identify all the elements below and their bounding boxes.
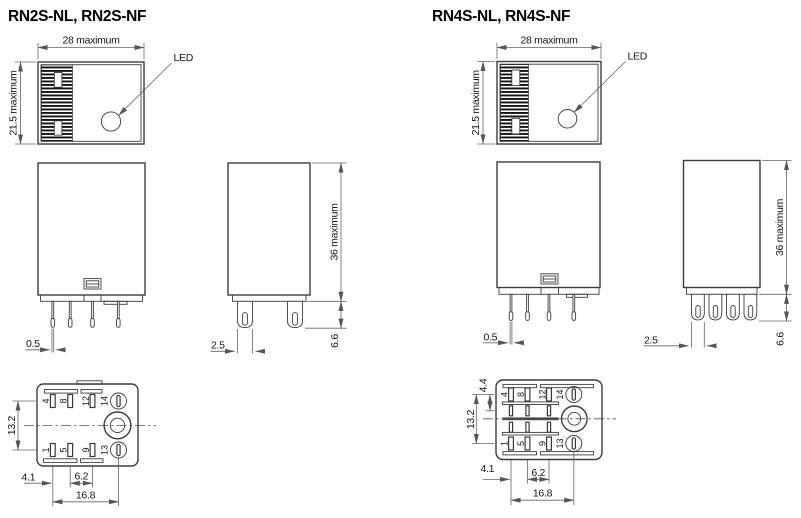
rn2s-pin-row-top: 4 8 12 14 bbox=[41, 393, 126, 409]
rn2s-led-indicator-circle bbox=[101, 112, 120, 131]
rn2s-body-height-text: 36 maximum bbox=[329, 203, 341, 261]
rn2s-slot-top bbox=[54, 73, 62, 88]
rn2s-blade-width-text: 2.5 bbox=[211, 340, 225, 352]
rn2s-pin-label: 9 bbox=[81, 447, 91, 452]
rn2s-top-view: LED 28 maximum 21.5 maximum bbox=[8, 35, 194, 145]
rn4s-height-dim-text: 21.5 maximum bbox=[470, 70, 482, 136]
rn2s-front-flange bbox=[41, 295, 143, 301]
rn4s-pin-length-dimension: 6.6 bbox=[759, 294, 792, 346]
rn4s-blade-width-dimension: 2.5 bbox=[644, 322, 716, 348]
rn2s-overall-pitch-text: 16.8 bbox=[76, 490, 96, 502]
rn4s-pin-thickness-text: 0.5 bbox=[484, 332, 498, 344]
rn2s-pin-label: 1 bbox=[41, 447, 51, 452]
rn4s-latch-plate bbox=[541, 274, 558, 284]
rn4s-height-dimension: 21.5 maximum bbox=[470, 62, 495, 145]
rn4s-blade-terminals bbox=[691, 294, 756, 320]
rn2s-pin-label: 8 bbox=[59, 398, 69, 403]
rn4s-front-flange bbox=[499, 288, 599, 295]
rn4s-front-pins bbox=[509, 294, 575, 320]
rn2s-front-view: 0.5 bbox=[26, 163, 146, 353]
rn2s-edge-offset-text: 4.1 bbox=[22, 472, 36, 484]
rn4s-center-pitch-text: 6.2 bbox=[531, 467, 545, 479]
rn2s-height-dimension: 21.5 maximum bbox=[8, 62, 37, 144]
rn4s-front-view: 0.5 bbox=[483, 162, 600, 345]
rn4s-blade-width-text: 2.5 bbox=[644, 335, 658, 347]
rn4s-pin-label: 4 bbox=[499, 392, 509, 397]
rn4s-side-outline bbox=[684, 161, 761, 288]
rn4s-pin-label: 5 bbox=[516, 441, 526, 446]
rn4s-pin-label: 14 bbox=[555, 389, 565, 399]
rn2s-width-dim-text: 28 maximum bbox=[62, 35, 120, 47]
rn2s-pin-thickness-text: 0.5 bbox=[26, 338, 40, 350]
rn4s-overall-pitch-text: 16.8 bbox=[533, 488, 553, 500]
dimension-drawing-page: RN2S-NL, RN2S-NF LED 28 maximum bbox=[0, 0, 801, 518]
rn4s-front-outline bbox=[497, 162, 600, 288]
rn2s-front-pins bbox=[51, 301, 120, 327]
rn4s-body-height-text: 36 maximum bbox=[774, 198, 786, 256]
rn2s-title: RN2S-NL, RN2S-NF bbox=[8, 8, 146, 25]
rn4s-slot-top bbox=[512, 70, 520, 86]
rn4s-bottom-view: 4 8 12 14 1 5 bbox=[465, 378, 616, 505]
rn2s-side-flange bbox=[233, 295, 307, 301]
rn4s-pin-row-4: 1 5 9 13 bbox=[499, 436, 581, 452]
rn2s-pin-thickness-dimension: 0.5 bbox=[26, 329, 64, 353]
rn4s-edge-offset-text: 4.1 bbox=[481, 463, 495, 475]
rn2s-slot-bottom bbox=[54, 121, 62, 135]
rn2s-center-pitch-text: 6.2 bbox=[74, 471, 88, 483]
rn4s-title: RN4S-NL, RN4S-NF bbox=[432, 8, 570, 25]
rn2s-led-label: LED bbox=[174, 52, 194, 64]
rn2s-front-outline bbox=[38, 163, 145, 295]
rn4s-width-dim-text: 28 maximum bbox=[520, 35, 578, 47]
rn4s-pin-row-3 bbox=[509, 422, 550, 432]
rn2s-pin-row-bottom: 1 5 9 13 bbox=[41, 442, 126, 458]
rn2s-height-dim-text: 21.5 maximum bbox=[8, 70, 20, 136]
rn4s-side-view: 36 maximum 6.6 2.5 bbox=[644, 161, 792, 348]
rn2s-pin-label: 14 bbox=[100, 396, 110, 406]
rn4s-pin-row-1: 4 8 12 14 bbox=[499, 387, 581, 403]
rn2s-bottom-view: 4 8 12 14 1 5 9 13 13.2 bbox=[6, 381, 156, 506]
rn2s-pin-length-dimension: 6.6 bbox=[305, 301, 347, 348]
rn4s-width-dimension: 28 maximum bbox=[497, 35, 601, 60]
rn4s-row-spacing-text: 4.4 bbox=[478, 378, 490, 392]
rn4s-pin-label: 1 bbox=[499, 441, 509, 446]
rn2s-pin-label: 5 bbox=[59, 447, 69, 452]
rn2s-body-height-dimension: 36 maximum bbox=[307, 163, 347, 301]
rn4s-pin-row-2 bbox=[509, 406, 550, 416]
rn2s-side-view: 36 maximum 6.6 2.5 bbox=[211, 163, 347, 354]
rn2s-pin-label: 12 bbox=[81, 396, 91, 406]
rn4s-body-height-dimension: 36 maximum bbox=[759, 161, 792, 295]
rn4s-pin-label: 8 bbox=[516, 392, 526, 397]
rn4s-pin-length-text: 6.6 bbox=[775, 332, 787, 346]
rn4s-pin-label: 13 bbox=[555, 438, 565, 448]
rn4s-led-label: LED bbox=[628, 51, 648, 63]
rn4s-center-ridge bbox=[503, 417, 559, 420]
rn2s-side-outline bbox=[228, 163, 310, 295]
rn4s-side-flange bbox=[687, 288, 758, 295]
rn4s-led-callout: LED bbox=[574, 51, 648, 113]
relay-dimension-drawing: RN2S-NL, RN2S-NF LED 28 maximum bbox=[0, 0, 801, 518]
rn2s-blade-width-dimension: 2.5 bbox=[211, 329, 265, 354]
rn4s-row-pitch-text: 13.2 bbox=[465, 409, 477, 429]
rn2s-latch-plate bbox=[84, 279, 101, 289]
rn4s-drawing: RN4S-NL, RN4S-NF LED 28 maximum bbox=[432, 8, 792, 505]
rn4s-ridge bbox=[503, 402, 559, 405]
rn2s-pin-label: 13 bbox=[100, 445, 110, 455]
rn2s-row-pitch-text: 13.2 bbox=[6, 416, 18, 436]
rn2s-pin-label: 4 bbox=[41, 398, 51, 403]
rn4s-top-view: LED 28 maximum 21.5 maximum bbox=[470, 35, 648, 145]
rn2s-blade-terminals bbox=[238, 301, 303, 327]
rn4s-pin-label: 12 bbox=[537, 389, 547, 399]
rn2s-drawing: RN2S-NL, RN2S-NF LED 28 maximum bbox=[6, 8, 347, 506]
rn2s-pin-length-text: 6.6 bbox=[329, 334, 341, 348]
rn4s-row-spacing-dimension: 4.4 bbox=[472, 378, 495, 411]
rn4s-pin-label: 9 bbox=[537, 441, 547, 446]
rn4s-slot-bottom bbox=[512, 118, 520, 134]
rn4s-pin-thickness-dimension: 0.5 bbox=[483, 322, 521, 345]
rn2s-width-dimension: 28 maximum bbox=[38, 35, 144, 60]
